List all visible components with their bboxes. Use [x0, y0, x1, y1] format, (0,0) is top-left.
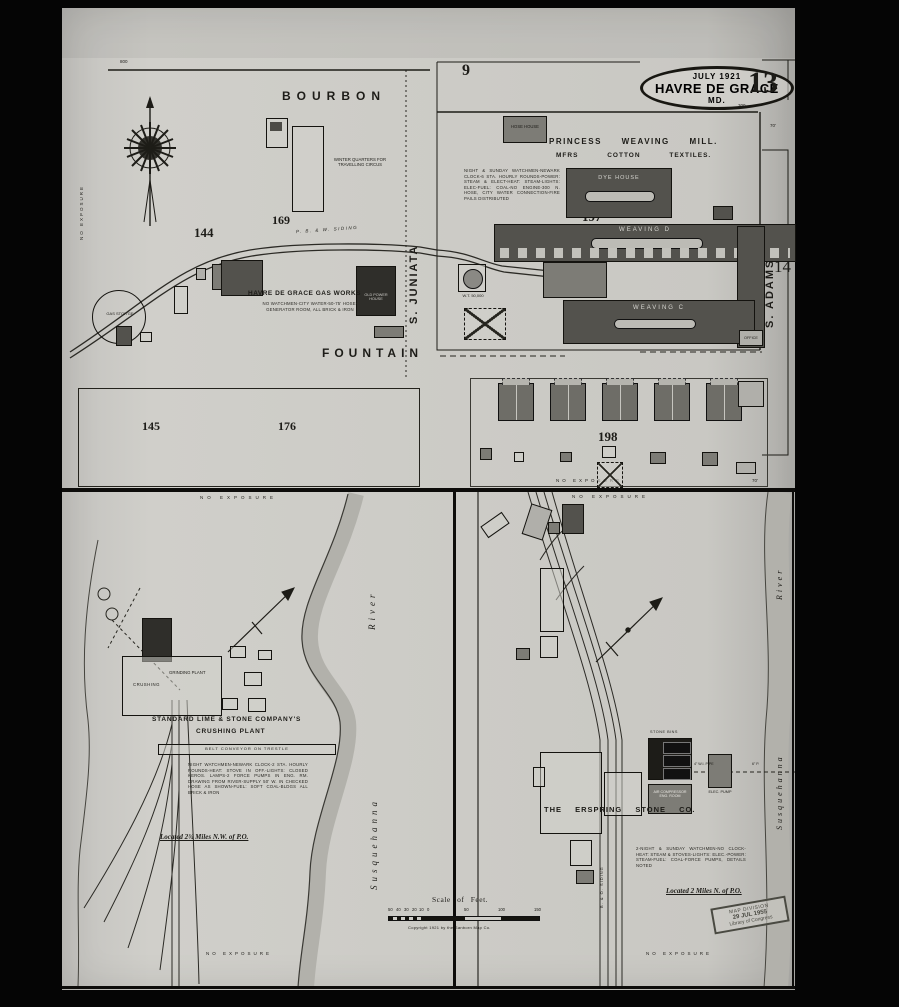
mill-note: NIGHT & SUNDAY WATCHMEN-NEWARK CLOCK-6 S… — [464, 168, 560, 201]
bin-cell-3 — [663, 768, 691, 780]
building-198-end — [738, 381, 764, 407]
outbuilding-6 — [702, 452, 718, 466]
weaving-c-label: WEAVING C — [564, 305, 754, 312]
pipe-label: 4" W.I. PIPE — [694, 763, 714, 767]
plant-outbuilding-5 — [248, 698, 266, 712]
crushing-plant-name-2: CRUSHING PLANT — [196, 728, 265, 735]
outbuilding-open-shed — [597, 462, 623, 488]
bin-cell-2 — [663, 755, 691, 767]
building-small-tank-house — [174, 286, 188, 314]
elec-pump-label: ELEC. PUMP — [702, 790, 738, 794]
river-label-left-1: Susquehanna — [370, 740, 380, 890]
compass-rose-icon — [124, 96, 176, 226]
water-tank-icon — [463, 269, 483, 289]
river-band-left — [298, 494, 356, 988]
building-dyeing — [543, 262, 607, 298]
sheet-bottom-rule — [62, 986, 795, 989]
street-juniata: S. JUNIATA — [408, 232, 420, 324]
dim-70-b: 70' — [752, 479, 758, 484]
building-office: OFFICE — [739, 330, 763, 346]
block-number-176: 176 — [278, 420, 296, 433]
building-elec-pump — [708, 754, 732, 788]
building-left-tiny — [140, 332, 152, 342]
mill-name-line2: MFRS COTTON TEXTILES. — [556, 152, 711, 159]
grinding-label: GRINDING PLANT — [169, 671, 213, 676]
building-open-shed-mill — [464, 308, 506, 340]
br-building-lower-2 — [576, 870, 594, 884]
building-weaving-c: WEAVING C — [563, 300, 755, 344]
br-building-small-mid — [516, 648, 530, 660]
br-building-dark-top — [562, 504, 584, 534]
gasworks-name: HAVRE DE GRACE GAS WORKS — [248, 290, 361, 297]
outbuilding-7 — [736, 462, 756, 474]
circus-label: WINTER QUARTERS FOR TRAVELLING CIRCUS — [326, 158, 394, 167]
building-circus-small — [266, 118, 288, 148]
crushing-label: CRUSHING — [133, 683, 160, 688]
block-145-176-outline — [78, 388, 420, 487]
building-gasworks-shop — [374, 326, 404, 338]
outbuilding-5 — [650, 452, 666, 464]
plant-outbuilding-1 — [230, 646, 246, 658]
no-exposure-bl-top: NO EXPOSURE — [200, 496, 277, 501]
gas-holder-label: GAS STOR'GE — [101, 312, 139, 316]
building-gasworks-wing — [212, 264, 222, 290]
belt-conveyor-trestle: BELT CONVEYOR ON TRESTLE — [158, 744, 336, 755]
scale-bar — [388, 916, 540, 921]
crushing-plant-note: NIGHT WATCHMEN-NEWARK CLOCK-2 STA. HOURL… — [188, 762, 308, 795]
outbuilding-2 — [514, 452, 524, 462]
railroad-label-bo: B. & O. SIDING — [600, 838, 604, 908]
outbuilding-4 — [602, 446, 616, 458]
street-fountain: FOUNTAIN — [322, 347, 423, 360]
located-left-label: Located 2¾ Miles N.W. of P.O. — [160, 834, 248, 842]
building-duplex-3 — [602, 383, 638, 421]
dim-70-a: 70' — [770, 124, 776, 129]
panel-divider-horizontal — [62, 488, 795, 492]
bin-cell-1 — [663, 742, 691, 754]
building-duplex-2 — [550, 383, 586, 421]
river-label-left-2: River — [368, 555, 378, 630]
building-circus-main — [292, 126, 324, 212]
sheet-number: 13 — [748, 66, 778, 99]
scale-ticks: 50 40 30 20 10 0 50 100 150 — [388, 908, 540, 914]
building-dye-house: DYE HOUSE — [566, 168, 672, 218]
conveyor-label: BELT CONVEYOR ON TRESTLE — [159, 747, 335, 751]
block-number-144: 144 — [194, 226, 214, 240]
hose-house-label: HOSE HOUSE — [506, 125, 544, 130]
no-exposure-topleft: NO EXPOSURE — [80, 150, 85, 240]
block-number-198: 198 — [598, 430, 618, 444]
plant-outbuilding-4 — [222, 698, 238, 710]
dim-800: 800 — [120, 60, 128, 65]
pipe2-label: 6" P. — [752, 763, 759, 767]
building-plant-complex: CRUSHING GRINDING PLANT — [122, 656, 222, 716]
building-duplex-4 — [654, 383, 690, 421]
old-power-house-label: OLD POWER HOUSE — [359, 293, 393, 301]
br-building-tall — [540, 568, 564, 632]
dim-300: 300 — [738, 104, 746, 109]
weaving-c-band — [614, 319, 696, 329]
building-duplex-5 — [706, 383, 742, 421]
building-duplex-1 — [498, 383, 534, 421]
street-bourbon: BOURBON — [282, 90, 386, 103]
stone-co-name: THE ERSPRING STONE CO. — [544, 806, 695, 814]
block-number-145: 145 — [142, 420, 160, 433]
dye-house-label: DYE HOUSE — [567, 175, 671, 181]
br-building-small-top — [548, 522, 560, 534]
sheet-right-rule — [792, 492, 794, 986]
river-label-right-2: River — [776, 530, 785, 600]
water-tank-structure — [458, 264, 486, 292]
building-stone-co-main — [540, 752, 602, 834]
crushing-plant-name-1: STANDARD LIME & STONE COMPANY'S — [152, 716, 301, 723]
no-exposure-br-bottom: NO EXPOSURE — [646, 952, 712, 957]
building-chip — [270, 122, 282, 131]
block-number-169: 169 — [272, 214, 290, 227]
located-right-label: Located 2 Miles N. of P.O. — [666, 888, 742, 896]
outbuilding-1 — [480, 448, 492, 460]
gasworks-note: NO WATCHMEN-CITY WATER-50-75' HOSE-GENER… — [256, 301, 364, 312]
building-left-small — [116, 326, 132, 346]
water-tank-label: W.T. 50,000 — [452, 294, 494, 298]
br-building-lower-1 — [570, 840, 592, 866]
copyright-label: Copyright 1921 by the Sanborn Map Co. — [408, 926, 491, 930]
office-label: OFFICE — [740, 336, 762, 340]
stone-bins-label: STONE BINS — [650, 730, 678, 734]
no-exposure-bl-bottom: NO EXPOSURE — [206, 952, 272, 957]
plant-outbuilding-3 — [244, 672, 262, 686]
dye-house-band — [585, 191, 655, 202]
building-stone-bins — [648, 738, 692, 780]
stone-co-note: 2-NIGHT & SUNDAY WATCHMEN-NO CLOCK-HEAT:… — [636, 846, 746, 868]
air-compressor-label: AIR COMPRESSOR ENG. ROOM — [651, 791, 689, 799]
railroad-fan-left — [84, 700, 199, 986]
no-exposure-br-top: NO EXPOSURE — [572, 495, 649, 500]
map-linework — [0, 0, 899, 1007]
hillside-line — [78, 540, 98, 986]
building-hose-house: HOSE HOUSE — [503, 116, 547, 143]
map-stage: 9 JULY 1921 HAVRE DE GRACE MD. 13 14 800… — [0, 0, 899, 1007]
scale-title: Scale of Feet. — [432, 896, 488, 904]
adjoining-sheet-top: 9 — [462, 62, 470, 80]
mill-name-line1: PRINCESS WEAVING MILL. — [549, 138, 718, 147]
stone-co-bay — [533, 767, 545, 787]
building-mill-small-ne — [713, 206, 733, 220]
br-building-tall-annex — [540, 636, 558, 658]
north-arrow-left-icon — [228, 588, 294, 652]
building-gasworks-shed — [196, 268, 206, 280]
river-label-right-1: Susquehanna — [776, 680, 785, 830]
north-arrow-right-icon — [596, 598, 662, 662]
outbuilding-3 — [560, 452, 572, 462]
plant-outbuilding-2 — [258, 650, 272, 660]
